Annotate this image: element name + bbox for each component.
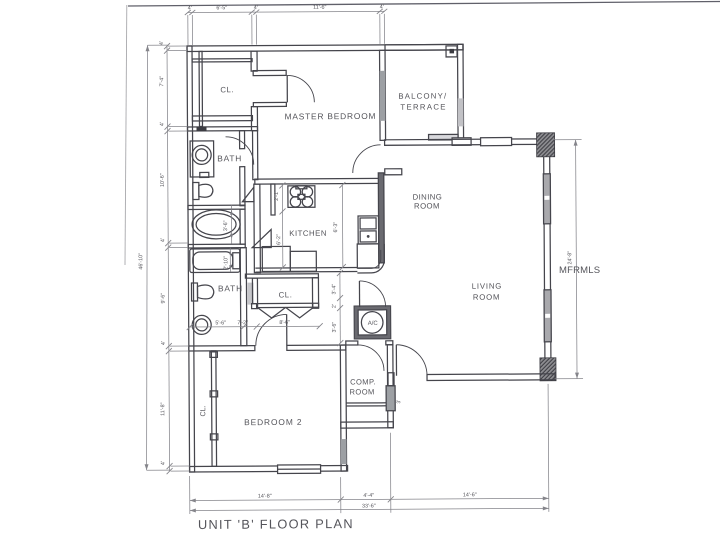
svg-text:6'-2": 6'-2": [276, 234, 282, 245]
svg-text:2'-10": 2'-10": [223, 256, 229, 270]
svg-text:3'-6": 3'-6": [332, 322, 338, 333]
svg-text:4': 4': [159, 41, 165, 45]
svg-text:9'-6": 9'-6": [161, 293, 167, 304]
svg-text:4': 4': [188, 5, 192, 11]
svg-text:TERRACE: TERRACE: [400, 102, 446, 111]
svg-text:4'-4": 4'-4": [363, 493, 374, 499]
svg-text:4': 4': [380, 4, 384, 10]
svg-text:4': 4': [254, 5, 258, 11]
svg-text:ROOM: ROOM: [349, 387, 374, 396]
svg-text:5'-6": 5'-6": [215, 320, 226, 326]
svg-text:ROOM: ROOM: [473, 293, 501, 302]
svg-text:7'-4": 7'-4": [159, 76, 165, 87]
svg-text:11'-8": 11'-8": [160, 402, 166, 415]
svg-text:4': 4': [161, 461, 167, 465]
svg-text:MASTER BEDROOM: MASTER BEDROOM: [285, 111, 377, 122]
svg-text:2'-1": 2'-1": [274, 190, 280, 201]
svg-text:4': 4': [160, 238, 166, 242]
svg-text:3'-6": 3'-6": [223, 220, 229, 231]
svg-text:4': 4': [159, 122, 165, 126]
svg-text:3'-4": 3'-4": [331, 284, 337, 295]
svg-text:10'-6": 10'-6": [160, 173, 166, 187]
svg-text:BALCONY/: BALCONY/: [398, 91, 447, 100]
svg-text:6'-5": 6'-5": [216, 5, 227, 11]
svg-text:MFRMLS: MFRMLS: [559, 265, 600, 276]
svg-text:CL.: CL.: [198, 405, 207, 416]
svg-text:COMP.: COMP.: [350, 377, 376, 386]
svg-text:46'-10": 46'-10": [138, 253, 144, 270]
svg-text:UNIT 'B' FLOOR PLAN: UNIT 'B' FLOOR PLAN: [198, 516, 354, 532]
svg-text:8'-6": 8'-6": [279, 320, 290, 326]
svg-text:A/C: A/C: [368, 321, 379, 327]
svg-text:ROOM: ROOM: [414, 201, 440, 210]
svg-text:14'-8": 14'-8": [258, 494, 272, 500]
svg-text:11'-6": 11'-6": [313, 5, 326, 11]
svg-text:LIVING: LIVING: [472, 282, 502, 291]
svg-text:BATH: BATH: [217, 153, 242, 163]
svg-text:6'-3": 6'-3": [333, 222, 339, 233]
svg-text:14'-6": 14'-6": [463, 492, 477, 498]
svg-text:CL.: CL.: [279, 290, 293, 299]
svg-text:KITCHEN: KITCHEN: [289, 229, 327, 238]
svg-text:24'-8": 24'-8": [567, 251, 573, 265]
svg-text:DINING: DINING: [413, 192, 443, 201]
svg-text:7'-2": 7'-2": [237, 320, 248, 326]
svg-text:33'-6": 33'-6": [362, 503, 376, 509]
svg-text:CL.: CL.: [220, 85, 234, 94]
svg-text:2': 2': [332, 304, 338, 308]
svg-text:BATH: BATH: [218, 283, 243, 293]
svg-text:BEDROOM 2: BEDROOM 2: [244, 417, 302, 427]
svg-text:3': 3': [396, 400, 402, 404]
svg-text:4': 4': [161, 341, 167, 345]
